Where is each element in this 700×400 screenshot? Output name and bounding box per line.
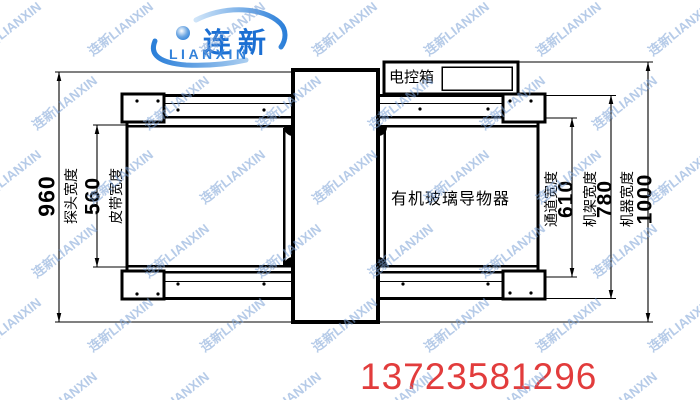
phone-number: 13723581296 [360,356,597,398]
dim-probe-value: 960 [36,175,59,216]
dim-machine-value: 1000 [635,174,656,225]
page: 连新 LIANXIN 电控箱 有机玻璃导物器 960 探头宽度 560 皮带宽度… [0,0,700,400]
logo-text-en: LIANXIN [169,46,250,62]
probe-outline [293,70,378,322]
acrylic-guide-label: 有机玻璃导物器 [391,192,510,208]
dim-probe-label: 探头宽度 [64,168,78,224]
dim-channel-value: 610 [556,180,577,218]
dim-machine-label: 机器宽度 [620,171,634,227]
control-box-label: 电控箱 [389,70,434,85]
logo-sphere-icon [176,26,190,40]
dim-belt-label: 皮带宽度 [109,168,123,224]
dim-belt-value: 560 [83,177,104,215]
dim-frame-value: 780 [595,180,616,218]
